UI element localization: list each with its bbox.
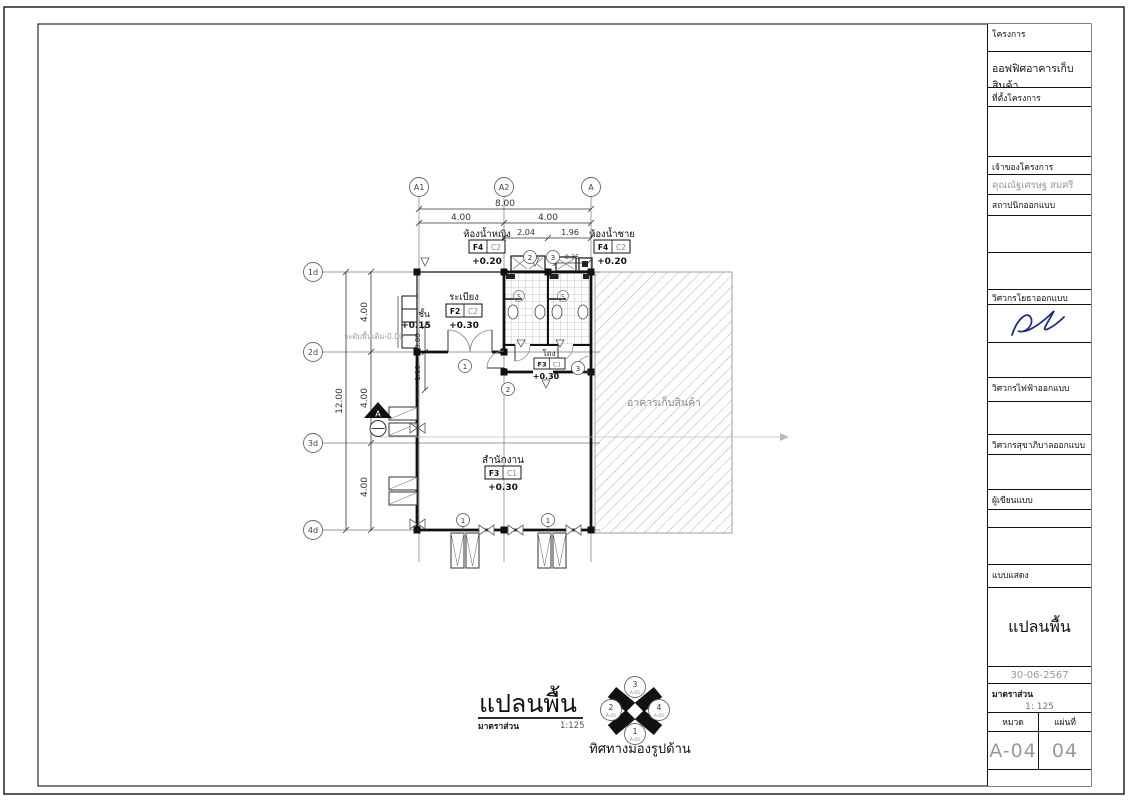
svg-text:C2: C2 [491, 243, 501, 252]
svg-text:+0.15: +0.15 [401, 321, 431, 331]
title-block-row-site-label: ที่ตั้งโครงการ [988, 88, 1091, 107]
title-block-row-drawing-title: แปลนพื้น [988, 588, 1091, 667]
svg-text:2: 2 [609, 703, 614, 712]
grid-col-a: A [588, 183, 594, 192]
section-letter: A [375, 410, 381, 419]
svg-text:4.00: 4.00 [360, 477, 370, 497]
title-block-row-project-label: โครงการ [988, 24, 1091, 52]
svg-text:ห้องน้ำหญิง: ห้องน้ำหญิง [463, 227, 510, 240]
svg-text:5: 5 [517, 294, 521, 301]
grid-row-1: 1d [308, 268, 318, 277]
svg-text:4.00: 4.00 [538, 213, 558, 223]
site-label: ที่ตั้งโครงการ [988, 88, 1091, 105]
title-block-row-project-name: ออฟฟิศอาคารเก็บสินค้า [988, 52, 1091, 88]
warehouse-label: อาคารเก็บสินค้า [627, 395, 701, 409]
title-block-row-civil-signature [988, 305, 1091, 343]
title-block-row-drawing-shows-label: แบบแสดง [988, 565, 1091, 588]
drawing-number: A-04 [988, 732, 1039, 769]
grid-col-a2: A2 [499, 183, 510, 192]
svg-text:โถง: โถง [542, 348, 555, 358]
category-label: หมวด [988, 713, 1039, 731]
title-block-row-electrical-label: วิศวกรไฟฟ้าออกแบบ [988, 378, 1091, 402]
title-block-row-owner-label: เจ้าของโครงการ [988, 157, 1091, 175]
svg-text:F4: F4 [473, 243, 483, 252]
svg-text:C1: C1 [553, 361, 562, 369]
svg-text:5: 5 [561, 294, 565, 301]
svg-text:F4: F4 [598, 243, 608, 252]
svg-text:4: 4 [657, 703, 662, 712]
scale-value: 1: 125 [988, 702, 1091, 712]
svg-text:A-05: A-05 [630, 690, 640, 696]
svg-text:2: 2 [528, 254, 532, 262]
svg-text:12.00: 12.00 [335, 388, 345, 414]
grid-row-2: 2d [308, 348, 318, 357]
windows-bottom [451, 533, 566, 568]
svg-text:4.00: 4.00 [360, 302, 370, 322]
title-block-row-spacer-6 [988, 528, 1091, 565]
sheet-borders [4, 7, 1124, 794]
svg-text:8.00: 8.00 [495, 199, 515, 209]
svg-text:3: 3 [551, 254, 555, 262]
title-block-row-spacer-5 [988, 510, 1091, 528]
svg-text:C2: C2 [468, 307, 478, 316]
sheet-label: แผ่นที่ [1039, 713, 1091, 731]
svg-text:3: 3 [633, 680, 638, 689]
svg-text:สำนักงาน: สำนักงาน [482, 455, 524, 466]
drawing-title: แปลนพื้น [1008, 615, 1071, 640]
title-block-row-date: 30-06-2567 [988, 667, 1091, 684]
title-block-row-sanitary-label: วิศวกรสุขาภิบาลออกแบบ [988, 435, 1091, 455]
title-block-row-scale: มาตราส่วน 1: 125 [988, 684, 1091, 713]
title-block-row-civil-label: วิศวกรโยธาออกแบบ [988, 290, 1091, 305]
svg-text:1: 1 [633, 727, 638, 736]
title-block-row-draftsman-label: ผู้เขียนแบบ [988, 490, 1091, 510]
draftsman-label: ผู้เขียนแบบ [988, 490, 1091, 507]
footer-title: แปลนพื้น [479, 685, 577, 718]
grid-row-4: 4d [308, 526, 318, 535]
svg-text:A-05: A-05 [606, 713, 616, 719]
svg-text:ห้องน้ำชาย: ห้องน้ำชาย [589, 227, 635, 240]
title-block-row-architect-label: สถาปนิกออกแบบ [988, 195, 1091, 216]
title-block-row-spacer-1 [988, 253, 1091, 290]
title-block: โครงการ ออฟฟิศอาคารเก็บสินค้า ที่ตั้งโคร… [987, 24, 1091, 786]
svg-text:4.00: 4.00 [451, 213, 471, 223]
owner-name: คุณณัฐเศรษฐ สมศรี [988, 175, 1091, 193]
electrical-engineer-label: วิศวกรไฟฟ้าออกแบบ [988, 378, 1091, 395]
dimension-texts-left: 12.00 4.00 4.00 4.00 0.80 1.10 [335, 302, 422, 497]
svg-text:C1: C1 [507, 469, 517, 478]
project-label: โครงการ [988, 24, 1091, 41]
sanitary-engineer-label: วิศวกรสุขาภิบาลออกแบบ [988, 435, 1091, 452]
title-block-row-bottom-filler [988, 770, 1091, 785]
svg-text:1: 1 [461, 517, 465, 525]
drawing-date: 30-06-2567 [1010, 670, 1068, 681]
svg-text:2.04: 2.04 [517, 228, 535, 237]
title-block-row-sheet-headers: หมวด แผ่นที่ [988, 713, 1091, 732]
civil-engineer-label: วิศวกรโยธาออกแบบ [988, 290, 1091, 305]
svg-text:2: 2 [506, 386, 510, 394]
svg-text:ชั้น: ชั้น [418, 308, 430, 320]
title-block-row-spacer-3 [988, 402, 1091, 435]
title-block-row-sheet-numbers: A-04 04 [988, 732, 1091, 770]
footer-scale-value: 1:125 [560, 721, 585, 731]
sheet-number: 04 [1039, 732, 1091, 769]
warehouse-area: อาคารเก็บสินค้า [595, 272, 732, 533]
project-name: ออฟฟิศอาคารเก็บสินค้า [988, 52, 1091, 88]
title-block-row-spacer-4 [988, 455, 1091, 490]
grid-row-3: 3d [308, 439, 318, 448]
grid-col-a1: A1 [414, 183, 425, 192]
svg-text:+0.30: +0.30 [449, 321, 479, 331]
drawing-shows-label: แบบแสดง [988, 565, 1091, 582]
svg-text:C2: C2 [616, 243, 626, 252]
drawing-sheet: อาคารเก็บสินค้า A1 A2 A 1d 2d 3d 4d [0, 0, 1129, 801]
svg-text:1: 1 [463, 363, 467, 371]
signature [988, 305, 1090, 341]
footer-title-group: แปลนพื้น มาตราส่วน 1:125 [478, 685, 585, 732]
elevation-compass: 3 A-05 1 A-05 2 A-05 4 A-05 ทิศทางมองรูป… [589, 677, 691, 758]
svg-text:A-05: A-05 [654, 713, 664, 719]
svg-text:F3: F3 [489, 469, 499, 478]
svg-text:+0.20: +0.20 [472, 257, 502, 267]
footer-scale-label: มาตราส่วน [478, 721, 519, 732]
title-block-row-spacer-2 [988, 343, 1091, 378]
svg-text:+0.30: +0.30 [488, 483, 518, 493]
svg-text:1: 1 [546, 517, 550, 525]
floor-plan-svg: อาคารเก็บสินค้า A1 A2 A 1d 2d 3d 4d [0, 0, 1129, 801]
svg-text:1.96: 1.96 [561, 228, 579, 237]
svg-text:F3: F3 [538, 361, 547, 369]
title-block-row-owner-name: คุณณัฐเศรษฐ สมศรี [988, 175, 1091, 195]
compass-caption: ทิศทางมองรูปด้าน [589, 742, 691, 757]
owner-label: เจ้าของโครงการ [988, 157, 1091, 174]
svg-text:ระดับพื้นเดิม-0.00: ระดับพื้นเดิม-0.00 [344, 331, 404, 341]
scale-label: มาตราส่วน [988, 684, 1091, 701]
windows-left [389, 407, 417, 505]
svg-text:F2: F2 [450, 307, 460, 316]
svg-text:4.00: 4.00 [360, 388, 370, 408]
title-block-row-architect-sign [988, 216, 1091, 253]
title-block-row-site-value [988, 107, 1091, 157]
svg-text:0.80: 0.80 [414, 333, 422, 349]
svg-text:+0.20: +0.20 [597, 257, 627, 267]
svg-text:ระเบียง: ระเบียง [449, 291, 479, 303]
svg-text:+0.30: +0.30 [533, 372, 560, 381]
svg-text:3: 3 [576, 365, 580, 373]
architect-label: สถาปนิกออกแบบ [988, 195, 1091, 212]
